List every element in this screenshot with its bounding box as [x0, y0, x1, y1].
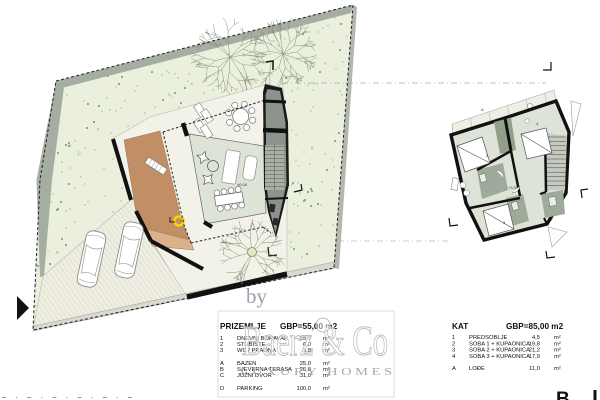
svg-text:m²: m² — [554, 354, 561, 360]
svg-text:m²: m² — [554, 335, 561, 341]
svg-text:KAT: KAT — [452, 322, 468, 331]
svg-text:PARKING: PARKING — [237, 386, 263, 392]
svg-text:21,2: 21,2 — [529, 348, 540, 354]
svg-text:m²: m² — [554, 341, 561, 347]
svg-text:SOBA 3 + KUPAONICA: SOBA 3 + KUPAONICA — [469, 354, 530, 360]
svg-text:L U X U R Y H O M E S: L U X U R Y H O M E S — [240, 367, 392, 378]
svg-text:3: 3 — [220, 348, 223, 354]
svg-text:SOBA 2 + KUPAONICA: SOBA 2 + KUPAONICA — [469, 348, 530, 354]
svg-text:D: D — [220, 386, 224, 392]
svg-text:m²: m² — [554, 366, 561, 372]
svg-text:4,5: 4,5 — [532, 335, 540, 341]
svg-text:3: 3 — [452, 348, 455, 354]
svg-text:1: 1 — [452, 335, 455, 341]
svg-text:m²: m² — [554, 348, 561, 354]
svg-text:B: B — [556, 389, 570, 400]
svg-text:C: C — [220, 373, 224, 379]
svg-text:100,0: 100,0 — [296, 386, 311, 392]
svg-text:11,0: 11,0 — [529, 366, 540, 372]
svg-text:PREDSOBLJE: PREDSOBLJE — [469, 335, 507, 341]
svg-text:LOĐE: LOĐE — [469, 366, 485, 372]
svg-text:Baerz & Co: Baerz & Co — [242, 319, 388, 365]
svg-text:GBP=85,00 m2: GBP=85,00 m2 — [506, 322, 564, 331]
svg-text:m²: m² — [323, 386, 330, 392]
svg-text:by: by — [246, 284, 268, 308]
svg-text:SOBA 1 + KUPAONICA: SOBA 1 + KUPAONICA — [469, 341, 530, 347]
svg-text:A: A — [452, 366, 456, 372]
svg-text:±0,00: ±0,00 — [237, 182, 248, 187]
svg-text:19,8: 19,8 — [529, 341, 540, 347]
svg-text:17,9: 17,9 — [529, 354, 540, 360]
svg-text:2: 2 — [452, 341, 455, 347]
svg-text:A: A — [481, 107, 484, 112]
